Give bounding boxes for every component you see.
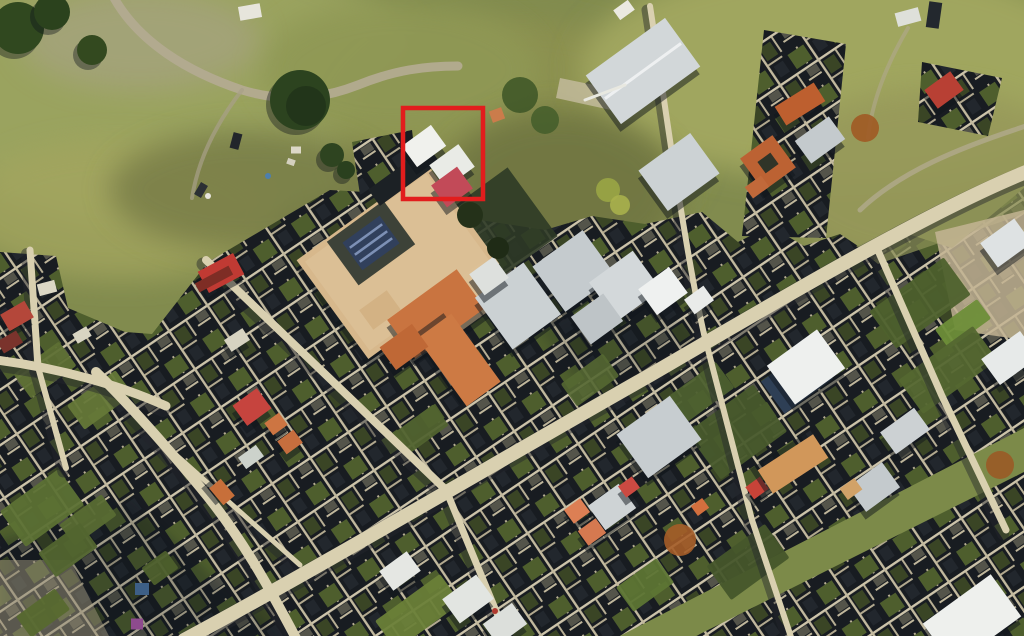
garden-tree xyxy=(457,202,483,228)
tree-corner xyxy=(77,35,107,65)
tree-core xyxy=(286,86,326,126)
garden-tree xyxy=(487,237,509,259)
tree xyxy=(337,161,355,179)
autumn-tree xyxy=(664,524,696,556)
blue-tarp xyxy=(135,583,149,595)
blue-object xyxy=(265,173,271,179)
scrub-tree xyxy=(502,77,538,113)
red-dot xyxy=(492,608,498,614)
autumn-tree xyxy=(986,451,1014,479)
purple-roof xyxy=(131,619,143,630)
satellite-map xyxy=(0,0,1024,636)
yellow-bush xyxy=(610,195,630,215)
white-dot xyxy=(205,193,211,199)
autumn-tree xyxy=(851,114,879,142)
white-object xyxy=(291,147,301,154)
scrub-tree xyxy=(531,106,559,134)
aerial-screenshot xyxy=(0,0,1024,636)
